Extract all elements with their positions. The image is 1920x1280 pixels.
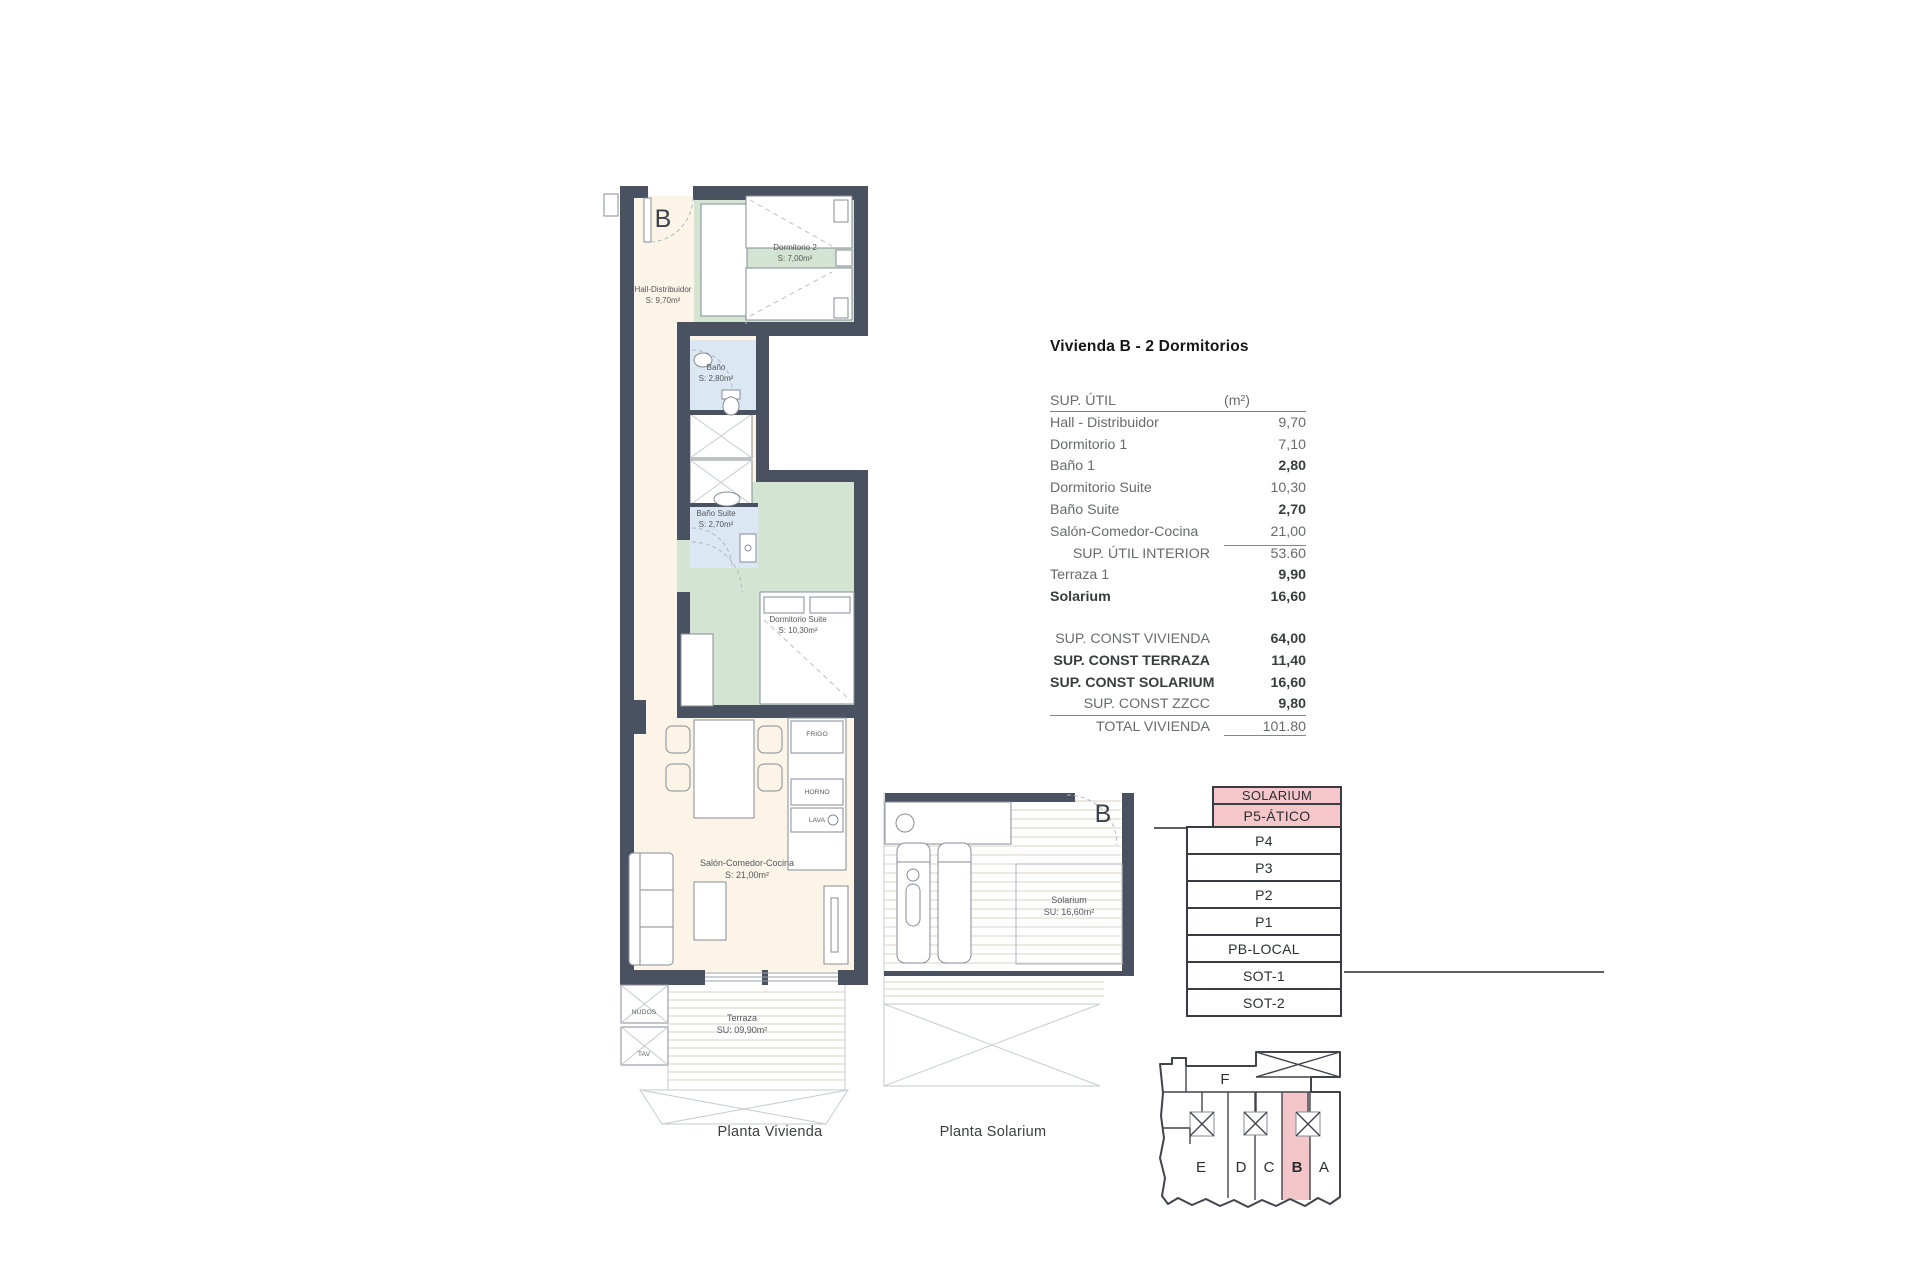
row-label: SUP. CONST ZZCC (1050, 696, 1224, 712)
table-header: SUP. ÚTIL (m²) (1050, 385, 1306, 412)
hall-label: Hall-Distribuidor (635, 285, 692, 294)
floor-plan-vivienda: B Hall-Distribuidor S: 9,70m² Dormitorio… (604, 186, 868, 1124)
stack-floor-sot1: SOT-1 (1186, 961, 1342, 990)
table-row: Dormitorio 17,10 (1050, 434, 1306, 456)
table-const-row: SUP. CONST SOLARIUM16,60 (1050, 672, 1306, 694)
row-value: 7,10 (1224, 437, 1306, 453)
solarium-counter (885, 802, 1011, 844)
table-const-row: SUP. CONST ZZCC9,80 (1050, 694, 1306, 716)
solarium-area: SU: 16,60m² (1044, 907, 1095, 917)
solarium-label: Solarium (1051, 895, 1087, 905)
area-summary-table: Vivienda B - 2 Dormitorios SUP. ÚTIL (m²… (1050, 338, 1306, 738)
row-label: SUP. CONST VIVIENDA (1050, 631, 1224, 647)
stack-floor-p1: P1 (1186, 907, 1342, 936)
solarium-unit-letter: B (1095, 800, 1112, 828)
hall-area: S: 9,70m² (646, 296, 681, 305)
plan-drawing: B Hall-Distribuidor S: 9,70m² Dormitorio… (0, 0, 1920, 1280)
footprint-unit-b-highlight (1282, 1092, 1310, 1200)
footprint-unit-e: E (1196, 1159, 1206, 1176)
terraza-label: Terraza (727, 1013, 757, 1023)
row-label: Solarium (1050, 589, 1111, 605)
footprint-unit-a: A (1319, 1159, 1329, 1176)
row-label: SUP. ÚTIL INTERIOR (1050, 546, 1224, 562)
solarium-right-wall (1122, 793, 1134, 975)
row-value: 9,70 (1224, 415, 1306, 431)
drawing-sheet: B Hall-Distribuidor S: 9,70m² Dormitorio… (0, 0, 1920, 1280)
table-row: Hall - Distribuidor9,70 (1050, 412, 1306, 434)
table-row: Baño Suite2,70 (1050, 499, 1306, 521)
table-row: Salón-Comedor-Cocina21,00 (1050, 521, 1306, 543)
row-value: 9,80 (1224, 696, 1306, 712)
row-value: 16,60 (1229, 675, 1307, 691)
stack-floor-p5-atico: P5-ÁTICO (1212, 803, 1342, 828)
page-title: Vivienda B - 2 Dormitorios (1050, 338, 1306, 356)
floor-stack-diagram: SOLARIUM P5-ÁTICO P4 P3 P2 P1 PB-LOCAL S… (1186, 786, 1342, 1017)
dormitorio-suite-area: S: 10,30m² (778, 626, 817, 635)
shaft-nudos-label: NUDOS (632, 1009, 657, 1016)
footprint-unit-f: F (1220, 1071, 1229, 1088)
stack-floor-sot2: SOT-2 (1186, 988, 1342, 1017)
exterior-notch (769, 336, 868, 470)
dormitorio-suite-label: Dormitorio Suite (769, 615, 827, 624)
row-label: TOTAL VIVIENDA (1050, 719, 1224, 735)
row-value: 11,40 (1224, 653, 1306, 669)
table-const-row: SUP. CONST VIVIENDA64,00 (1050, 628, 1306, 650)
row-value: 53.60 (1224, 545, 1306, 562)
header-unit: (m²) (1224, 393, 1250, 409)
meter-box (604, 194, 618, 216)
terraza (621, 985, 848, 1090)
table-subtotal-row: SUP. ÚTIL INTERIOR53.60 (1050, 543, 1306, 565)
stack-floor-p3: P3 (1186, 853, 1342, 882)
terrace-apron-hatch (640, 1090, 848, 1124)
unit-letter: B (655, 205, 672, 233)
footprint-unit-c: C (1264, 1159, 1275, 1176)
table-row: Dormitorio Suite10,30 (1050, 477, 1306, 499)
ground-level-line (1344, 971, 1604, 973)
floor-plan-solarium: B Solarium SU: 16,60m² (884, 793, 1134, 1086)
bano-suite-area: S: 2,70m² (699, 520, 734, 529)
solarium-lower-terrace (884, 976, 1104, 1086)
salon-area: S: 21,00m² (725, 870, 769, 880)
row-label: Baño Suite (1050, 502, 1119, 518)
row-value: 9,90 (1224, 567, 1306, 583)
header-label: SUP. ÚTIL (1050, 393, 1116, 409)
footprint-unit-d: D (1236, 1159, 1247, 1176)
installation-shafts (690, 414, 752, 505)
row-label: Terraza 1 (1050, 567, 1109, 583)
shaft-tav-label: TAV (638, 1051, 651, 1058)
row-label: Hall - Distribuidor (1050, 415, 1159, 431)
caption-planta-vivienda: Planta Vivienda (670, 1124, 870, 1140)
terrace-window (705, 973, 838, 981)
dormitorio2-area: S: 7,00m² (778, 254, 813, 263)
bano-suite-label: Baño Suite (696, 509, 736, 518)
row-label: SUP. CONST SOLARIUM (1050, 675, 1229, 691)
row-value: 21,00 (1224, 524, 1306, 540)
row-label: Dormitorio Suite (1050, 480, 1152, 496)
caption-planta-solarium: Planta Solarium (893, 1124, 1093, 1140)
row-value: 2,70 (1224, 502, 1306, 518)
oven-label: HORNO (804, 789, 829, 796)
building-footprint: F E D C B A (1160, 1052, 1340, 1207)
row-label: Dormitorio 1 (1050, 437, 1127, 453)
stack-floor-p2: P2 (1186, 880, 1342, 909)
fridge-label: FRIGO (806, 731, 828, 738)
table-const-row: SUP. CONST TERRAZA11,40 (1050, 650, 1306, 672)
row-value: 64,00 (1224, 631, 1306, 647)
row-value: 10,30 (1224, 480, 1306, 496)
stack-floor-p4: P4 (1186, 826, 1342, 855)
stack-left-tick (1154, 827, 1186, 829)
solarium-bottom-wall (884, 971, 1134, 976)
entrance-door-leaf (644, 198, 651, 242)
row-value: 101.80 (1224, 719, 1306, 736)
row-label: SUP. CONST TERRAZA (1050, 653, 1224, 669)
sink-label: LAVA (809, 817, 826, 824)
table-row: Solarium16,60 (1050, 586, 1306, 608)
row-label: Salón-Comedor-Cocina (1050, 524, 1198, 540)
row-value: 2,80 (1224, 458, 1306, 474)
stack-floor-pb-local: PB-LOCAL (1186, 934, 1342, 963)
row-value: 16,60 (1224, 589, 1306, 605)
footprint-cores (1190, 1112, 1320, 1136)
bano-area: S: 2,80m² (699, 374, 734, 383)
dormitorio2-label: Dormitorio 2 (773, 243, 817, 252)
salon-label: Salón-Comedor-Cocina (700, 858, 794, 868)
solarium-top-counter-wall (885, 793, 1075, 802)
footprint-unit-b: B (1292, 1159, 1303, 1176)
row-label: Baño 1 (1050, 458, 1095, 474)
table-row: Terraza 19,90 (1050, 565, 1306, 587)
table-row: Baño 12,80 (1050, 456, 1306, 478)
table-total-row: TOTAL VIVIENDA101.80 (1050, 715, 1306, 738)
terraza-area: SU: 09,90m² (717, 1025, 768, 1035)
bano-label: Baño (707, 363, 726, 372)
